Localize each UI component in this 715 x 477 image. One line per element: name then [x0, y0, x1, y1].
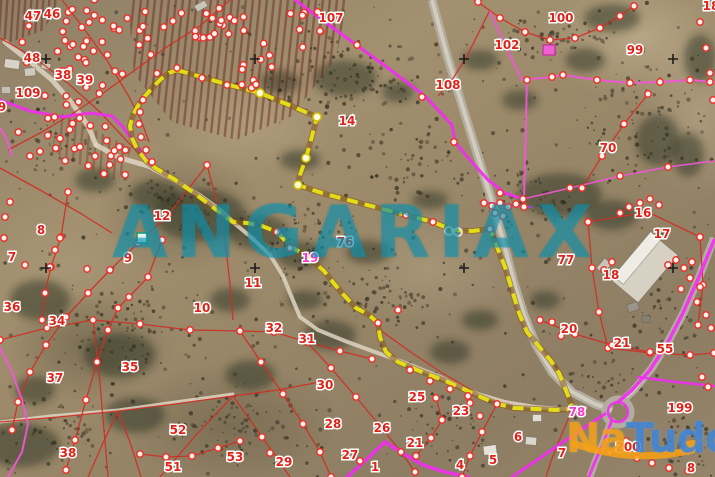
- svg-text:32: 32: [266, 321, 283, 335]
- svg-text:39: 39: [77, 73, 94, 87]
- svg-text:51: 51: [165, 460, 182, 474]
- svg-text:107: 107: [318, 11, 343, 25]
- svg-text:10: 10: [194, 301, 211, 315]
- svg-text:26: 26: [374, 421, 391, 435]
- svg-text:7: 7: [558, 446, 566, 460]
- svg-text:14: 14: [339, 114, 356, 128]
- svg-text:18: 18: [603, 268, 620, 282]
- svg-text:17: 17: [654, 227, 671, 241]
- svg-text:53: 53: [227, 450, 244, 464]
- svg-text:78: 78: [569, 405, 586, 419]
- svg-text:102: 102: [494, 38, 519, 52]
- svg-text:16: 16: [635, 206, 652, 220]
- svg-text:8: 8: [37, 223, 45, 237]
- svg-text:55: 55: [657, 342, 674, 356]
- pink-building-marker: [543, 45, 555, 55]
- svg-text:200: 200: [615, 440, 640, 454]
- svg-text:1: 1: [371, 460, 379, 474]
- svg-text:199: 199: [667, 401, 692, 415]
- svg-text:23: 23: [453, 404, 470, 418]
- svg-text:4: 4: [456, 458, 464, 472]
- svg-text:8: 8: [687, 461, 695, 475]
- svg-text:30: 30: [317, 378, 334, 392]
- svg-text:34: 34: [49, 314, 66, 328]
- teal-house-marker: [137, 233, 147, 243]
- svg-text:12: 12: [154, 209, 171, 223]
- svg-text:76: 76: [337, 235, 354, 249]
- svg-text:31: 31: [299, 332, 316, 346]
- svg-text:20: 20: [561, 322, 578, 336]
- svg-text:38: 38: [60, 446, 77, 460]
- svg-text:6: 6: [514, 430, 522, 444]
- svg-text:77: 77: [558, 253, 575, 267]
- svg-text:108: 108: [435, 78, 460, 92]
- svg-text:7: 7: [8, 250, 16, 264]
- svg-text:5: 5: [489, 453, 497, 467]
- svg-text:37: 37: [47, 371, 64, 385]
- svg-text:25: 25: [409, 390, 426, 404]
- svg-text:27: 27: [342, 448, 359, 462]
- svg-text:9: 9: [0, 100, 6, 114]
- svg-text:48: 48: [24, 51, 41, 65]
- svg-text:109: 109: [15, 86, 40, 100]
- map-viewport[interactable]: 4746483839109910710814100102991870871293…: [0, 0, 715, 477]
- svg-text:100: 100: [548, 11, 573, 25]
- svg-text:11: 11: [245, 276, 262, 290]
- svg-text:21: 21: [407, 436, 424, 450]
- svg-text:47: 47: [25, 9, 42, 23]
- svg-text:19: 19: [302, 251, 319, 265]
- svg-text:70: 70: [600, 141, 617, 155]
- map-canvas: 4746483839109910710814100102991870871293…: [0, 0, 715, 477]
- svg-text:46: 46: [44, 7, 61, 21]
- svg-text:28: 28: [325, 417, 342, 431]
- svg-text:9: 9: [124, 251, 132, 265]
- svg-text:18: 18: [703, 0, 715, 13]
- svg-text:35: 35: [122, 360, 139, 374]
- svg-text:21: 21: [614, 336, 631, 350]
- svg-text:36: 36: [4, 300, 21, 314]
- svg-text:99: 99: [627, 43, 644, 57]
- svg-text:52: 52: [170, 423, 187, 437]
- svg-text:29: 29: [276, 455, 293, 469]
- svg-text:38: 38: [55, 68, 72, 82]
